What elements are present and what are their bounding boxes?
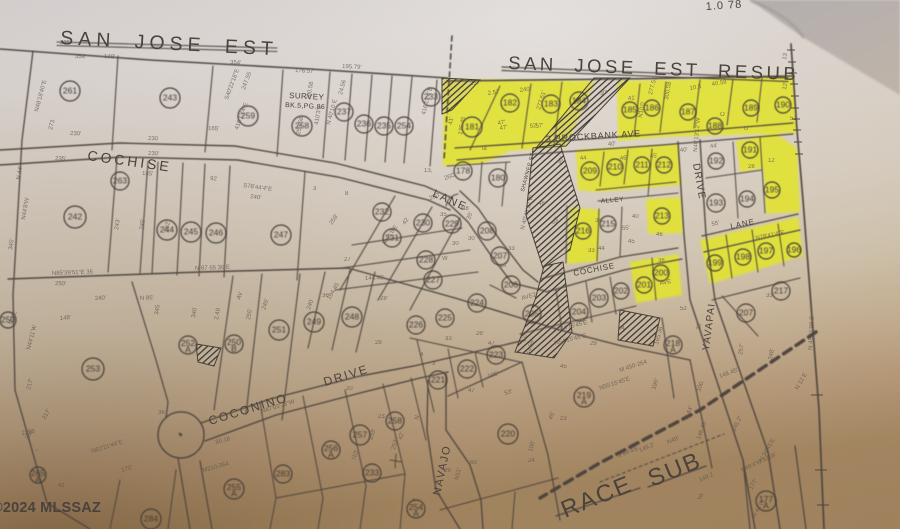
svg-text:217: 217 <box>774 286 788 296</box>
svg-text:A: A <box>328 450 334 460</box>
svg-text:249: 249 <box>307 317 321 327</box>
svg-text:211: 211 <box>635 160 649 170</box>
svg-text:207: 207 <box>493 251 507 261</box>
svg-text:176.57': 176.57' <box>295 68 315 75</box>
svg-text:248: 248 <box>345 312 359 322</box>
svg-text:230': 230' <box>148 151 159 157</box>
svg-text:23: 23 <box>560 416 567 422</box>
svg-text:28': 28' <box>380 296 388 302</box>
svg-text:233: 233 <box>365 468 379 478</box>
svg-text:13,: 13, <box>424 168 433 174</box>
svg-text:283: 283 <box>276 469 290 479</box>
svg-text:35: 35 <box>440 212 447 218</box>
svg-text:29: 29 <box>590 341 597 347</box>
svg-text:189: 189 <box>744 103 758 113</box>
svg-text:354': 354' <box>75 54 86 60</box>
svg-text:44: 44 <box>580 155 588 162</box>
svg-text:U: U <box>744 126 748 132</box>
svg-text:227: 227 <box>426 275 440 285</box>
svg-text:193: 193 <box>709 198 723 208</box>
svg-text:235: 235 <box>377 121 391 131</box>
svg-text:23: 23 <box>378 414 385 420</box>
svg-text:40: 40 <box>632 214 639 220</box>
svg-text:242: 242 <box>68 212 82 222</box>
svg-text:225: 225 <box>438 313 452 323</box>
svg-text:148': 148' <box>60 315 72 322</box>
svg-text:240': 240' <box>95 295 106 302</box>
svg-text:355': 355' <box>150 44 161 50</box>
svg-text:184: 184 <box>572 96 586 106</box>
svg-text:230': 230' <box>70 131 81 137</box>
svg-text:263: 263 <box>113 176 127 186</box>
svg-text:44': 44' <box>710 143 718 150</box>
svg-text:228: 228 <box>419 255 433 265</box>
svg-text:144.45': 144.45' <box>365 275 385 282</box>
svg-text:182: 182 <box>503 98 517 108</box>
svg-text:A: A <box>35 475 41 485</box>
svg-text:205: 205 <box>525 309 539 319</box>
svg-text:46: 46 <box>656 232 663 238</box>
svg-text:47: 47 <box>468 388 475 394</box>
svg-text:27: 27 <box>344 257 351 263</box>
svg-text:229: 229 <box>445 219 459 229</box>
svg-text:210: 210 <box>608 162 622 172</box>
svg-text:250': 250' <box>55 281 66 287</box>
svg-text:224: 224 <box>470 298 484 308</box>
svg-text:46': 46' <box>620 155 628 162</box>
svg-text:40': 40' <box>608 141 616 148</box>
svg-text:185: 185 <box>623 105 637 115</box>
svg-text:181: 181 <box>465 122 479 132</box>
svg-text:258: 258 <box>388 416 402 426</box>
svg-text:65': 65' <box>470 460 478 466</box>
svg-text:33: 33 <box>508 246 515 252</box>
svg-text:202: 202 <box>614 286 628 296</box>
svg-text:222: 222 <box>460 364 474 374</box>
svg-text:O: O <box>720 112 725 118</box>
svg-text:B: B <box>231 344 237 354</box>
svg-text:354': 354' <box>230 60 241 66</box>
svg-text:©2024 MLSSAZ: ©2024 MLSSAZ <box>0 500 101 516</box>
svg-text:246: 246 <box>209 228 223 238</box>
svg-text:38: 38 <box>595 218 602 224</box>
svg-text:201: 201 <box>637 280 651 290</box>
svg-text:261: 261 <box>63 86 77 96</box>
svg-text:212: 212 <box>657 160 671 170</box>
svg-text:41: 41 <box>58 483 65 489</box>
svg-text:243: 243 <box>163 93 177 103</box>
svg-text:20: 20 <box>346 386 353 392</box>
svg-text:251: 251 <box>272 325 286 335</box>
svg-text:47: 47 <box>488 341 495 347</box>
svg-text:44: 44 <box>598 246 605 252</box>
svg-text:N 87 65 30 E: N 87 65 30 E <box>195 265 230 272</box>
svg-text:209: 209 <box>583 166 597 176</box>
svg-text:145': 145' <box>142 171 153 178</box>
svg-text:230: 230 <box>416 218 430 228</box>
svg-text:226: 226 <box>409 320 423 330</box>
svg-text:190: 190 <box>776 100 790 110</box>
svg-text:186: 186 <box>645 103 659 113</box>
svg-text:254: 254 <box>397 121 411 131</box>
svg-text:30: 30 <box>468 236 475 242</box>
svg-text:195: 195 <box>765 185 779 195</box>
svg-text:52: 52 <box>790 116 797 122</box>
svg-text:N8: N8 <box>461 206 469 212</box>
svg-text:245: 245 <box>184 227 198 237</box>
svg-text:57': 57' <box>535 123 544 130</box>
svg-text:45': 45' <box>650 153 658 160</box>
svg-text:55': 55' <box>622 225 630 232</box>
svg-text:257: 257 <box>353 430 367 440</box>
svg-text:A: A <box>581 397 587 407</box>
svg-text:204: 204 <box>572 307 586 317</box>
svg-text:223: 223 <box>489 350 503 360</box>
svg-text:165': 165' <box>208 126 219 132</box>
svg-text:195.79': 195.79' <box>342 64 362 71</box>
svg-text:30: 30 <box>452 241 459 247</box>
svg-text:24: 24 <box>528 458 535 464</box>
svg-text:20: 20 <box>520 334 527 340</box>
svg-text:A: A <box>185 345 191 355</box>
svg-text:33: 33 <box>588 248 595 254</box>
svg-text:236: 236 <box>357 119 371 129</box>
svg-text:149': 149' <box>104 54 115 60</box>
svg-text:33: 33 <box>766 293 773 299</box>
svg-text:194: 194 <box>740 194 754 204</box>
svg-text:220: 220 <box>501 429 515 439</box>
svg-text:~: ~ <box>35 448 39 454</box>
svg-text:28: 28 <box>375 340 382 346</box>
svg-text:52: 52 <box>680 306 687 312</box>
svg-text:la: la <box>482 146 487 152</box>
svg-text:207: 207 <box>739 308 753 318</box>
svg-text:30': 30' <box>599 90 608 97</box>
svg-text:36: 36 <box>158 410 165 416</box>
svg-text:48: 48 <box>538 201 545 207</box>
svg-text:253: 253 <box>86 364 100 374</box>
svg-text:198: 198 <box>736 252 750 262</box>
svg-text:206: 206 <box>504 280 518 290</box>
svg-text:221: 221 <box>431 375 445 385</box>
svg-text:183: 183 <box>544 99 558 109</box>
svg-text:247: 247 <box>274 230 288 240</box>
svg-text:235': 235' <box>55 156 66 163</box>
svg-text:257': 257' <box>470 80 481 87</box>
svg-text:N 85': N 85' <box>140 295 154 302</box>
svg-text:12: 12 <box>768 158 775 164</box>
svg-text:284: 284 <box>144 514 158 524</box>
svg-text:191: 191 <box>743 145 757 155</box>
svg-text:178: 178 <box>456 166 470 176</box>
svg-text:232: 232 <box>375 207 389 217</box>
svg-text:188: 188 <box>708 121 722 131</box>
svg-text:W: W <box>442 256 448 262</box>
svg-text:38: 38 <box>658 258 665 264</box>
svg-text:199: 199 <box>708 258 722 268</box>
svg-text:26': 26' <box>476 331 484 337</box>
svg-text:197: 197 <box>759 246 773 256</box>
svg-text:203: 203 <box>592 293 606 303</box>
svg-text:215: 215 <box>601 219 615 229</box>
svg-text:208: 208 <box>480 226 494 236</box>
svg-text:A: A <box>231 489 237 499</box>
svg-text:180: 180 <box>491 173 505 183</box>
svg-text:45: 45 <box>560 364 567 370</box>
svg-text:196: 196 <box>787 245 801 255</box>
svg-text:92: 92 <box>210 176 218 183</box>
svg-text:237: 237 <box>337 107 351 117</box>
svg-text:230: 230 <box>148 136 159 142</box>
svg-text:45: 45 <box>628 239 635 245</box>
svg-text:187: 187 <box>681 107 695 117</box>
svg-text:200: 200 <box>654 268 668 278</box>
svg-text:40': 40' <box>680 147 688 154</box>
svg-text:235': 235' <box>60 40 71 46</box>
svg-text:24: 24 <box>618 326 625 332</box>
svg-text:28: 28 <box>748 164 755 170</box>
svg-text:41': 41' <box>628 96 636 102</box>
svg-text:216: 216 <box>576 226 590 236</box>
svg-text:192: 192 <box>709 156 723 166</box>
svg-text:33: 33 <box>445 336 452 342</box>
svg-text:213: 213 <box>655 211 669 221</box>
svg-text:A: A <box>670 345 676 355</box>
svg-text:A: A <box>413 509 419 519</box>
svg-text:29: 29 <box>444 468 451 474</box>
